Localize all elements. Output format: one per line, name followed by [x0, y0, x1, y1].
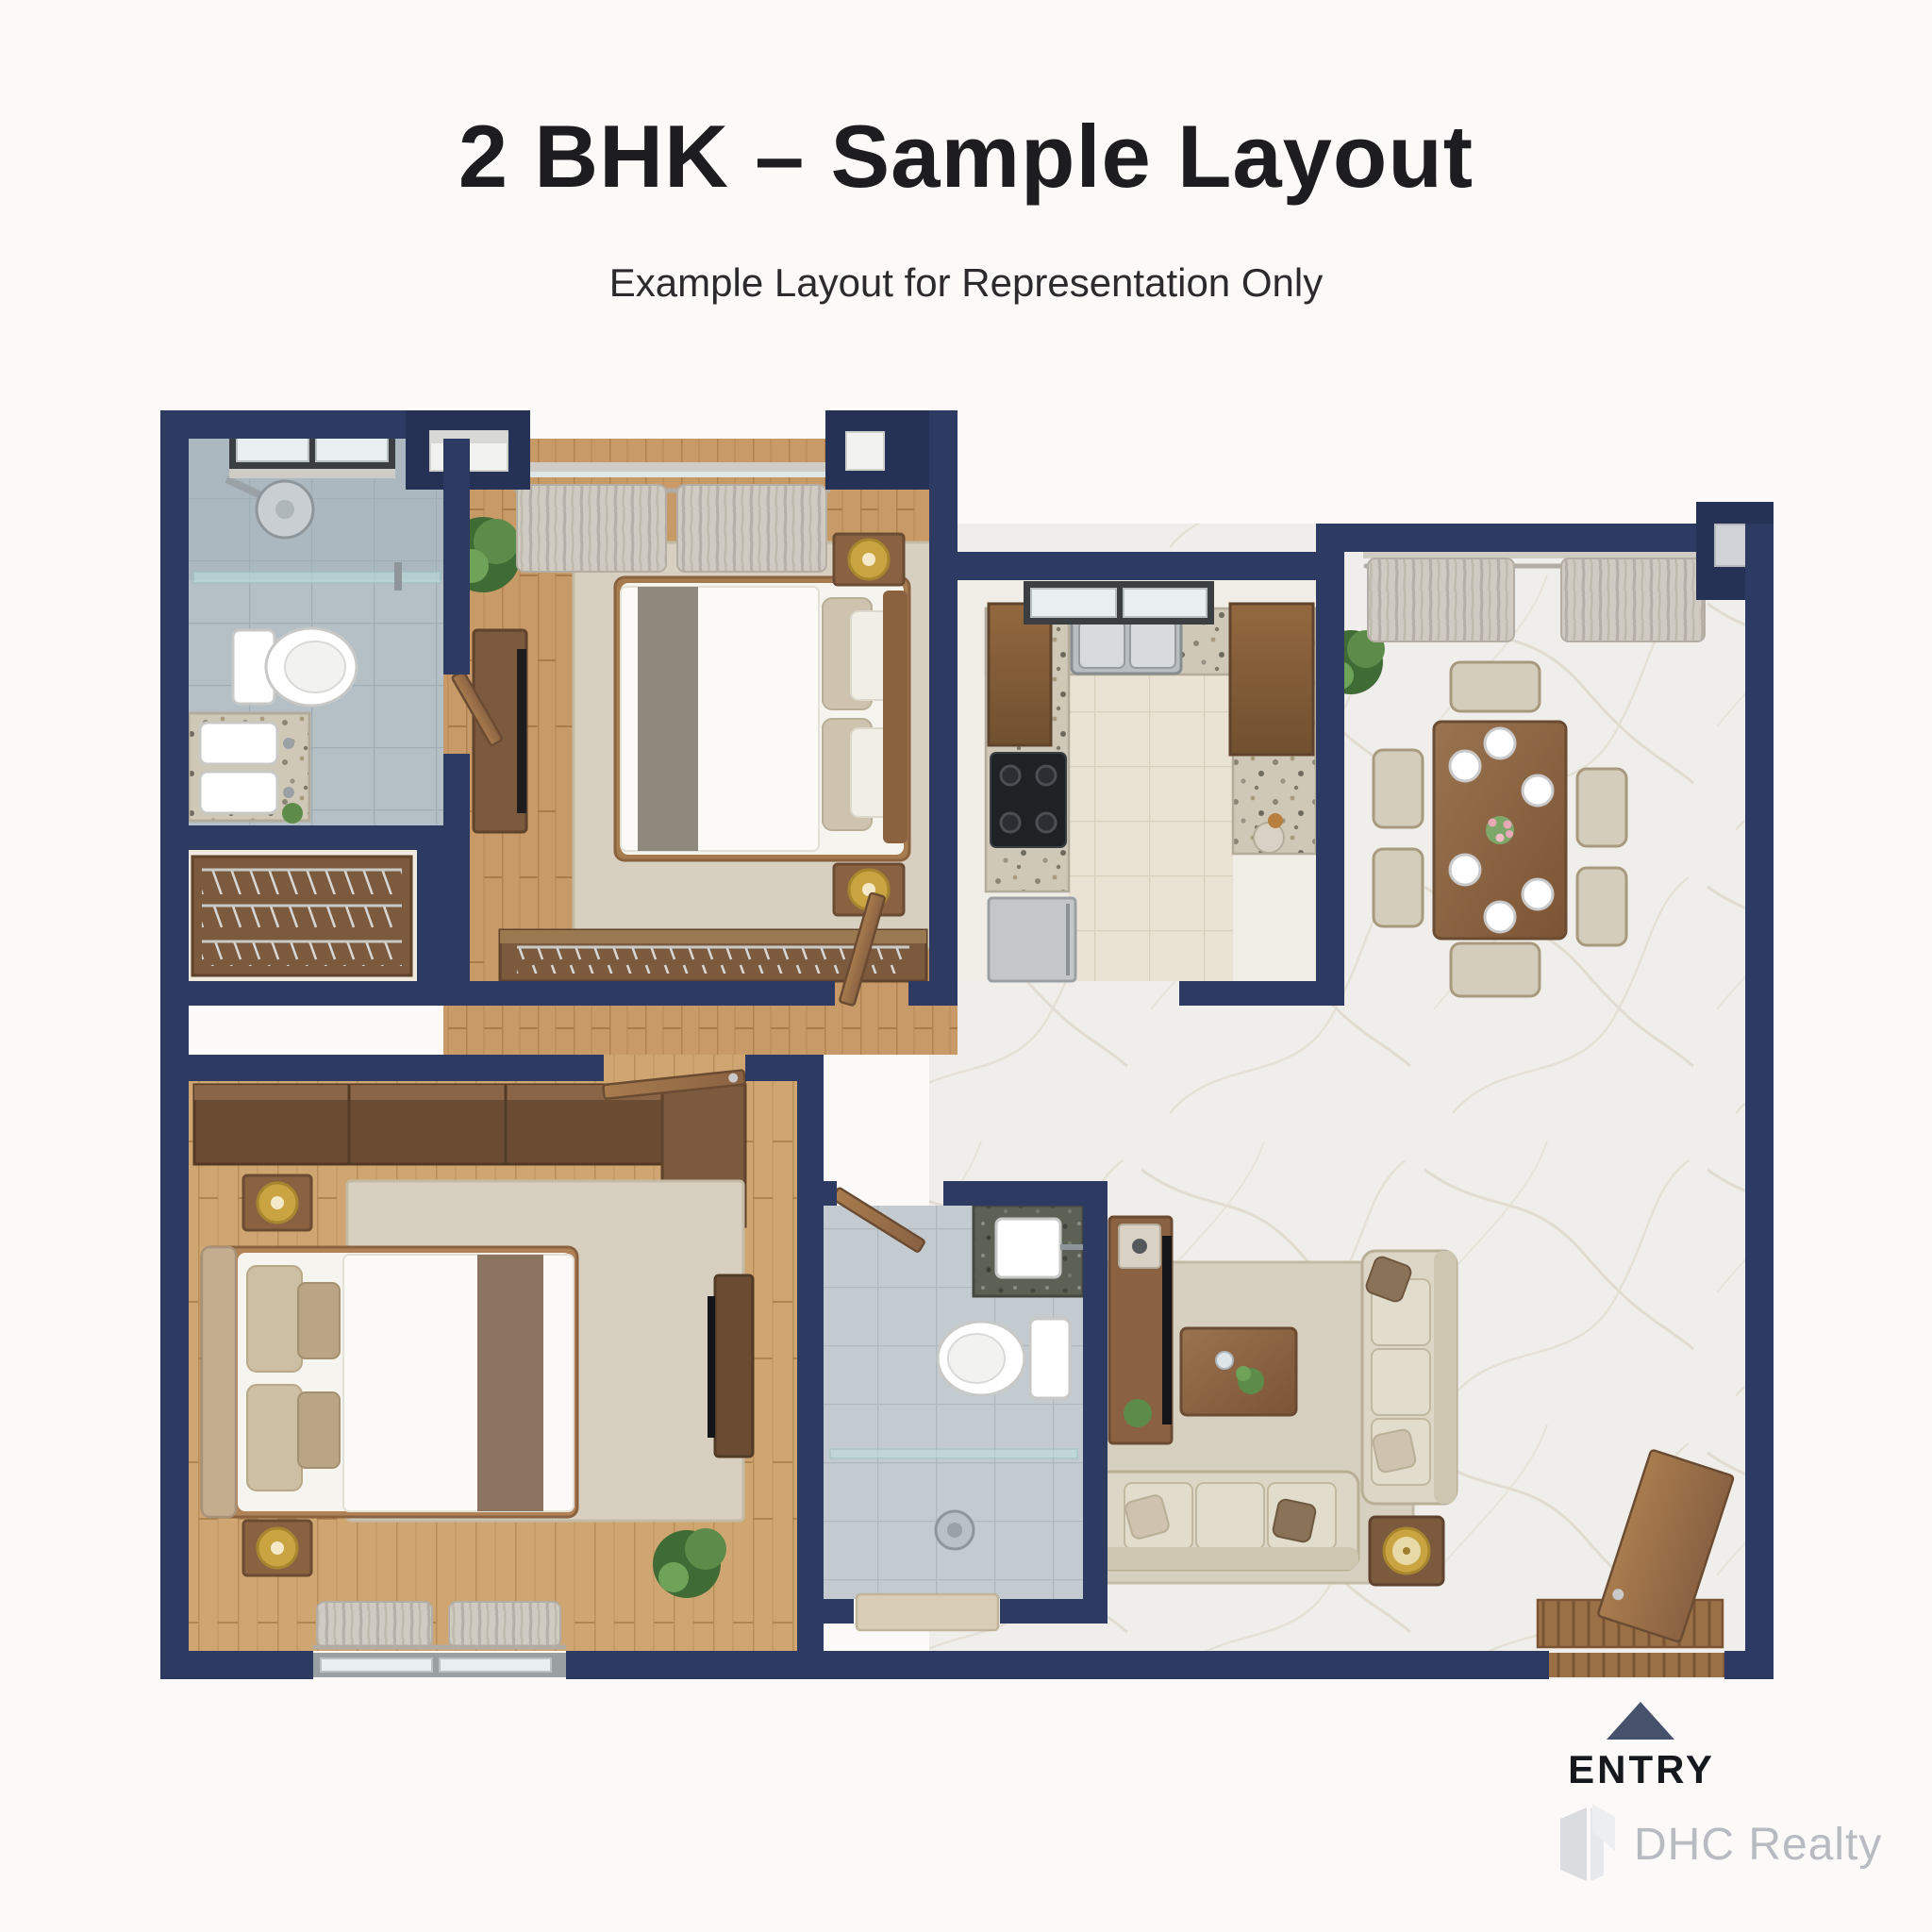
bath-mat: [857, 1594, 998, 1630]
throw-pillow: [1272, 1498, 1316, 1542]
wall-kitchen-bottom: [1179, 981, 1344, 1006]
bedroom-1-tv: [517, 649, 526, 813]
curtain: [317, 1602, 432, 1647]
headboard: [883, 591, 908, 843]
dining-chair: [1577, 868, 1626, 945]
counter-jar: [1268, 813, 1283, 828]
vase: [1216, 1352, 1233, 1369]
glass-handle: [394, 562, 402, 591]
sink-basin-2: [200, 772, 277, 813]
kitchen-cabinet: [1230, 604, 1313, 755]
vanity-1: [189, 713, 309, 824]
wall-closet-right: [417, 850, 470, 981]
wall-bottom-2: [566, 1651, 1549, 1679]
wall-bathroom1-closet: [160, 825, 470, 850]
wood-floor-hallway: [443, 1006, 958, 1055]
wall-bottom-1: [160, 1651, 313, 1679]
wall-master-top-a: [160, 1055, 604, 1081]
place-setting: [1485, 902, 1515, 932]
curtain: [449, 1602, 560, 1647]
entry-arrow-icon: [1607, 1702, 1674, 1740]
curtain: [1561, 558, 1705, 641]
sofa-three-seat: [1096, 1472, 1358, 1570]
sink-basin-1: [200, 723, 277, 764]
place-setting: [1450, 855, 1480, 885]
shower-glass-partition: [193, 572, 441, 583]
wall-bottom-3: [1724, 1651, 1774, 1679]
curtain: [517, 485, 666, 572]
table-centerpiece: [1486, 816, 1514, 844]
wall-master-top-b: [745, 1055, 797, 1081]
vanity-plant: [282, 803, 303, 824]
cooktop: [991, 753, 1066, 847]
throw-pillow: [1372, 1428, 1416, 1473]
wall-bathroom1-right-b: [443, 754, 470, 825]
curtain: [677, 485, 826, 572]
wall-left: [160, 410, 189, 1679]
wall-right: [1745, 524, 1774, 1679]
side-table: [1370, 1517, 1443, 1585]
curtain: [1368, 558, 1514, 641]
entry-threshold: [1549, 1653, 1724, 1677]
wall-dining-top: [1316, 524, 1745, 552]
entry-label: ENTRY: [1547, 1747, 1736, 1792]
pillow: [247, 1385, 302, 1491]
wall-bedroom1-kitchen: [929, 410, 958, 981]
fridge: [989, 898, 1075, 981]
dining-chair: [1374, 849, 1423, 926]
throw-blanket: [638, 587, 698, 851]
wall-top-bathroom: [160, 410, 434, 439]
wall-bath2-bottom-a: [824, 1599, 854, 1624]
wall-bath2-top-a: [824, 1181, 837, 1206]
bathroom-2-sink: [996, 1219, 1060, 1277]
wall-master-right: [797, 1055, 824, 1651]
toilet-1: [233, 628, 357, 706]
wall-kitchen-right: [1316, 552, 1344, 1006]
brand-name: DHC Realty: [1634, 1819, 1882, 1871]
floor-plan-drawing: [0, 0, 1932, 1932]
place-setting: [1450, 751, 1480, 781]
walk-in-closet: [192, 857, 411, 975]
floor-plan-page: 2 BHK – Sample Layout Example Layout for…: [0, 0, 1932, 1932]
console-plant: [1124, 1399, 1152, 1427]
master-tv-console: [715, 1275, 753, 1457]
bedroom-1-bed: [615, 577, 909, 860]
place-setting: [1523, 879, 1553, 909]
place-setting: [1485, 728, 1515, 758]
wall-niche: [846, 432, 884, 470]
kitchen-tile-floor: [1069, 675, 1233, 981]
kitchen-window: [1024, 581, 1214, 625]
wall-bathroom1-right-a: [443, 439, 470, 675]
sofa-side: [1362, 1251, 1457, 1504]
living-tv: [1162, 1236, 1172, 1424]
wall-bath2-bottom-b: [1000, 1599, 1108, 1624]
wall-bedroom1-bottom-b: [908, 981, 958, 1006]
master-tv: [708, 1296, 715, 1438]
dining-chair: [1577, 769, 1626, 846]
dining-chair: [1451, 662, 1540, 711]
open-door-cube-icon: [1558, 1804, 1621, 1885]
wall-closet-bottom: [160, 981, 443, 1006]
place-setting: [1523, 775, 1553, 806]
pillow: [247, 1266, 302, 1372]
shower-head-core: [275, 500, 294, 519]
wall-bedroom1-bottom-a: [443, 981, 835, 1006]
shower-glass-2: [830, 1449, 1077, 1458]
wall-bath2-top-b: [943, 1181, 1083, 1206]
wall-bath2-right: [1083, 1181, 1108, 1624]
pillow: [298, 1392, 340, 1468]
wall-kitchen-top: [958, 552, 1316, 580]
dining-chair: [1374, 750, 1423, 827]
throw-blanket: [477, 1255, 543, 1511]
headboard: [202, 1247, 236, 1517]
toilet-2: [938, 1319, 1070, 1398]
coffee-table: [1181, 1328, 1296, 1415]
brand-watermark: DHC Realty: [1558, 1804, 1882, 1885]
master-bed: [202, 1247, 577, 1517]
kitchen-cabinet: [989, 604, 1051, 745]
pillow: [298, 1283, 340, 1358]
dining-chair: [1451, 943, 1540, 996]
